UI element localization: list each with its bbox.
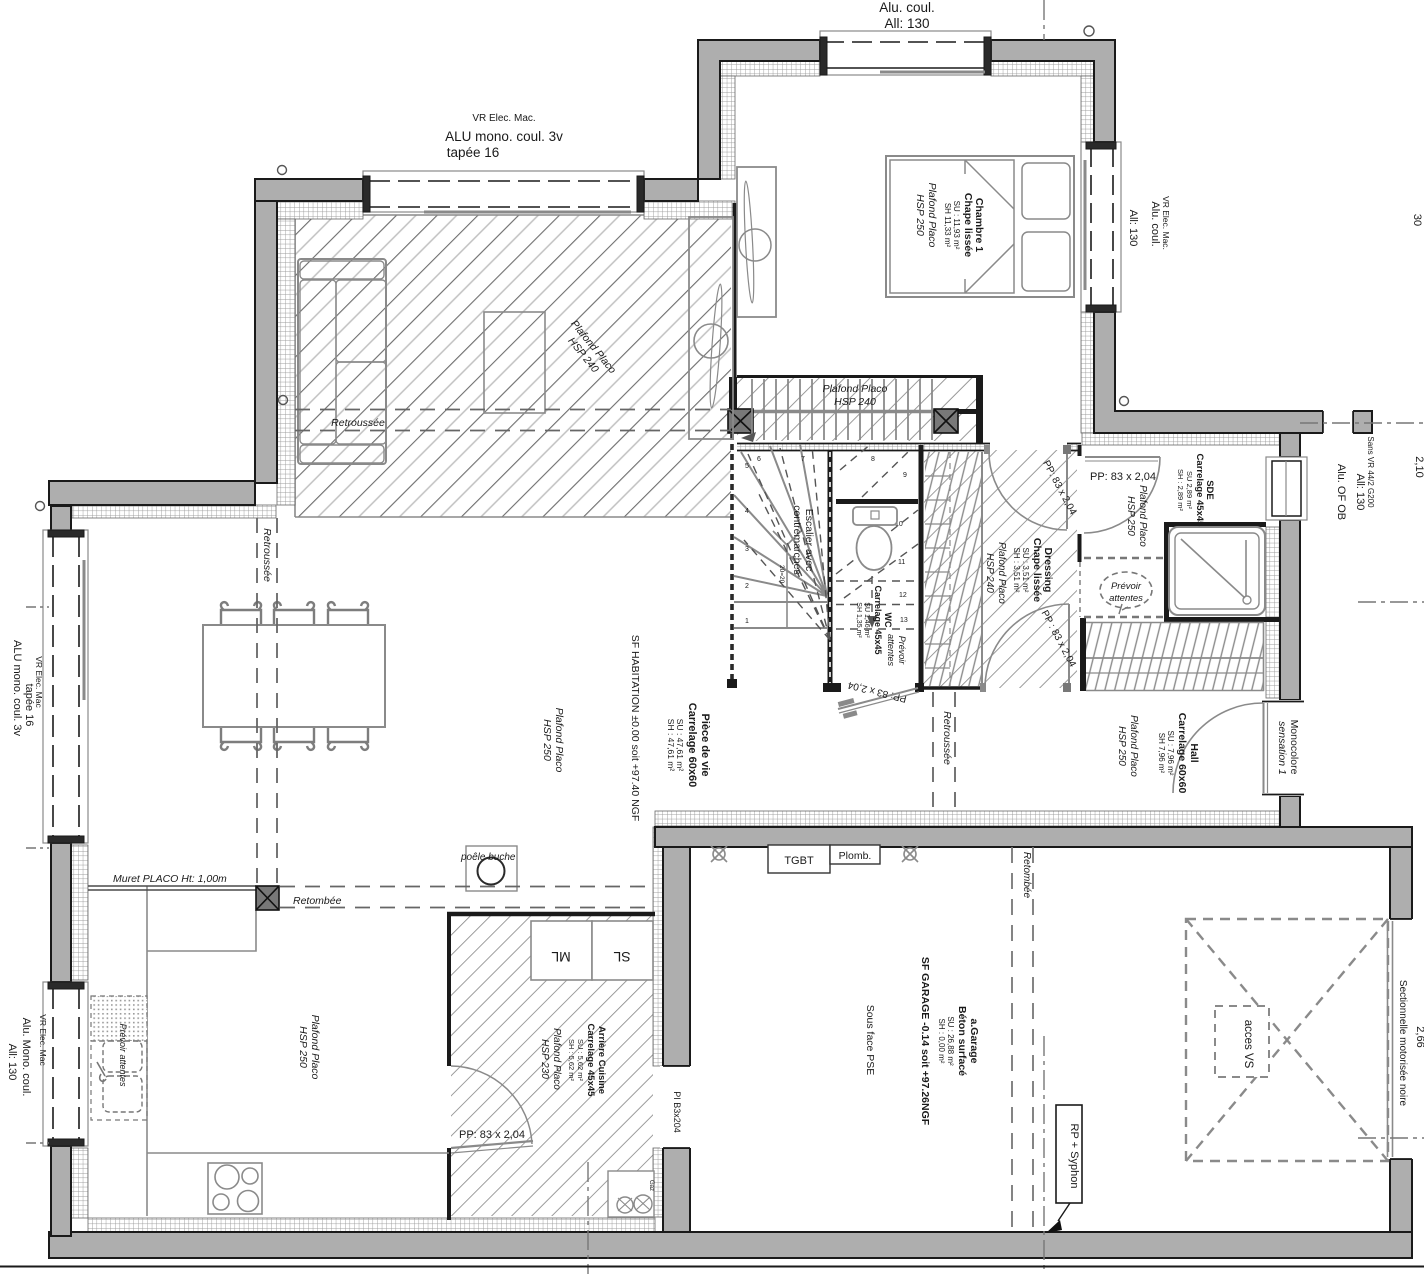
- svg-text:4: 4: [745, 508, 749, 515]
- svg-text:13: 13: [900, 617, 908, 624]
- svg-text:PI B3x204: PI B3x204: [672, 1091, 682, 1133]
- svg-text:6: 6: [757, 456, 761, 463]
- svg-text:Prévoir: Prévoir: [897, 636, 907, 666]
- svg-text:Retroussée: Retroussée: [331, 417, 385, 429]
- svg-text:All: 130: All: 130: [1127, 210, 1139, 247]
- svg-text:Alu. OF OB: Alu. OF OB: [1335, 464, 1347, 520]
- svg-text:VR Elec. Mac: VR Elec. Mac: [38, 1014, 48, 1066]
- svg-text:poêle buche: poêle buche: [460, 852, 516, 863]
- svg-text:SU : 26,88 m²: SU : 26,88 m²: [946, 1016, 955, 1066]
- svg-text:30: 30: [1411, 214, 1423, 226]
- svg-text:ALU mono. coul. 3v: ALU mono. coul. 3v: [11, 640, 23, 736]
- svg-text:Hall: Hall: [1188, 743, 1200, 762]
- svg-text:contremarches: contremarches: [791, 505, 803, 574]
- svg-text:9: 9: [903, 472, 907, 479]
- svg-text:SH 11,33 m²: SH 11,33 m²: [943, 203, 952, 248]
- svg-text:sensation 1: sensation 1: [1276, 721, 1288, 775]
- svg-text:PP: 83 x 2,04: PP: 83 x 2,04: [1090, 471, 1156, 483]
- svg-text:8: 8: [871, 456, 875, 463]
- svg-text:Pièce de vie: Pièce de vie: [699, 714, 711, 777]
- svg-text:acces VS: acces VS: [1242, 1020, 1254, 1069]
- svg-text:Sectionnelle motorisée noire: Sectionnelle motorisée noire: [1397, 980, 1408, 1107]
- svg-text:2: 2: [745, 583, 749, 590]
- svg-text:SH : 47,61 m²: SH : 47,61 m²: [666, 719, 676, 772]
- svg-text:Prévoir: Prévoir: [1111, 581, 1142, 592]
- svg-text:Chape lissée: Chape lissée: [1031, 538, 1043, 602]
- svg-text:Plafond Placo: Plafond Placo: [823, 383, 888, 395]
- svg-text:Retroussée: Retroussée: [941, 711, 953, 765]
- svg-text:Arrière Cuisine: Arrière Cuisine: [596, 1026, 607, 1094]
- svg-text:tapée 16: tapée 16: [23, 684, 35, 727]
- svg-text:Prévoir attentes: Prévoir attentes: [118, 1023, 128, 1087]
- svg-text:SH 1,35 m²: SH 1,35 m²: [855, 602, 862, 638]
- svg-text:Chape lissée: Chape lissée: [962, 193, 974, 257]
- svg-text:RP + Syphon: RP + Syphon: [1068, 1124, 1080, 1189]
- svg-text:Alu. Mono. coul.: Alu. Mono. coul.: [20, 1018, 32, 1097]
- svg-text:a.Garage: a.Garage: [968, 1019, 980, 1064]
- svg-text:2,10: 2,10: [1413, 456, 1424, 477]
- svg-text:Sans VR 44/2 G200: Sans VR 44/2 G200: [1366, 436, 1375, 508]
- svg-text:All: 130: All: 130: [884, 16, 929, 31]
- svg-text:SU : 5,62 m²: SU : 5,62 m²: [576, 1039, 585, 1082]
- svg-text:HSP 250: HSP 250: [541, 719, 553, 761]
- svg-text:SF HABITATION ±0.00 soit +97.4: SF HABITATION ±0.00 soit +97.40 NGF: [629, 635, 641, 822]
- svg-text:5: 5: [745, 463, 749, 470]
- svg-text:Carrelage 60x60: Carrelage 60x60: [1176, 713, 1188, 794]
- svg-text:TGBT: TGBT: [784, 855, 814, 867]
- svg-text:SH : 5,62 m²: SH : 5,62 m²: [567, 1039, 576, 1082]
- svg-text:Plafond Placo: Plafond Placo: [996, 542, 1007, 604]
- svg-text:SL: SL: [613, 949, 630, 965]
- svg-text:SU 2,89 m²: SU 2,89 m²: [1185, 471, 1194, 509]
- svg-text:HSP 250: HSP 250: [914, 194, 926, 236]
- svg-text:SH 7,96 m²: SH 7,96 m²: [1157, 733, 1166, 774]
- svg-text:11: 11: [898, 559, 905, 566]
- svg-text:ML: ML: [551, 949, 571, 965]
- svg-text:SU : 3,51 m²: SU : 3,51 m²: [1021, 548, 1030, 593]
- svg-text:Retroussée: Retroussée: [261, 528, 273, 582]
- svg-text:Carrelage 45x45: Carrelage 45x45: [873, 585, 883, 654]
- svg-text:attentes: attentes: [1109, 593, 1143, 604]
- svg-text:Carrelage 60x60: Carrelage 60x60: [686, 703, 698, 787]
- svg-text:HSP 240: HSP 240: [984, 553, 995, 593]
- svg-text:Carrelage 45x45: Carrelage 45x45: [1194, 454, 1205, 528]
- svg-text:VR Elec. Mac.: VR Elec. Mac.: [472, 113, 535, 124]
- svg-text:Muret PLACO Ht: 1,00m: Muret PLACO Ht: 1,00m: [113, 873, 227, 885]
- svg-text:Béton surfacé: Béton surfacé: [956, 1006, 968, 1076]
- svg-text:HSP 250: HSP 250: [1125, 496, 1136, 536]
- svg-text:3: 3: [745, 546, 749, 553]
- svg-text:SH : 3,51 m²: SH : 3,51 m²: [1012, 548, 1021, 593]
- svg-text:VR Elec. Mac.: VR Elec. Mac.: [1161, 196, 1171, 250]
- svg-text:12: 12: [899, 592, 907, 599]
- svg-text:20=20: 20=20: [778, 565, 785, 584]
- svg-text:Gaz: Gaz: [648, 1180, 654, 1191]
- svg-text:Sous face PSE: Sous face PSE: [864, 1005, 876, 1076]
- svg-text:PP: 83 x 2,04: PP: 83 x 2,04: [459, 1129, 525, 1141]
- svg-text:SU : 11,93 m²: SU : 11,93 m²: [952, 201, 961, 250]
- svg-text:All: 130: All: 130: [6, 1044, 18, 1081]
- svg-text:Retombée: Retombée: [293, 895, 342, 907]
- svg-text:SU 1,46 m²: SU 1,46 m²: [863, 602, 870, 638]
- svg-text:attentes: attentes: [886, 634, 896, 667]
- svg-text:Plafond Placo: Plafond Placo: [551, 1028, 562, 1090]
- svg-text:SF GARAGE -0.14 soit +97.26NGF: SF GARAGE -0.14 soit +97.26NGF: [919, 957, 931, 1126]
- svg-text:Plafond Placo: Plafond Placo: [309, 1015, 321, 1080]
- svg-text:Plomb.: Plomb.: [839, 850, 872, 862]
- svg-text:HSP 240: HSP 240: [834, 396, 876, 408]
- svg-text:Escalier avec: Escalier avec: [803, 509, 815, 571]
- svg-text:Alu. coul.: Alu. coul.: [1149, 201, 1161, 246]
- svg-text:2,66: 2,66: [1414, 1026, 1424, 1047]
- svg-text:Plafond Placo: Plafond Placo: [1137, 485, 1148, 547]
- svg-text:Alu. coul.: Alu. coul.: [879, 0, 935, 15]
- svg-text:HSP 250: HSP 250: [297, 1026, 309, 1068]
- svg-text:WC: WC: [883, 613, 893, 628]
- svg-text:HSP 230: HSP 230: [539, 1039, 550, 1079]
- svg-text:7: 7: [801, 456, 805, 463]
- svg-text:Retombée: Retombée: [1021, 852, 1032, 899]
- svg-text:1: 1: [745, 618, 749, 625]
- svg-text:Plafond Placo: Plafond Placo: [1128, 715, 1139, 777]
- svg-text:ALU mono. coul. 3v: ALU mono. coul. 3v: [445, 129, 563, 144]
- svg-text:All: 130: All: 130: [1354, 474, 1366, 511]
- svg-text:Carrelage 45x45: Carrelage 45x45: [585, 1024, 596, 1098]
- svg-text:SU : 7,96 m²: SU : 7,96 m²: [1166, 731, 1175, 776]
- svg-text:Monocolore: Monocolore: [1288, 720, 1300, 775]
- svg-text:HSP 250: HSP 250: [1116, 726, 1127, 766]
- svg-text:Plafond Placo: Plafond Placo: [553, 708, 565, 773]
- svg-text:SH : 2,89 m²: SH : 2,89 m²: [1176, 469, 1185, 512]
- svg-text:Plafond Placo: Plafond Placo: [926, 183, 938, 248]
- svg-text:tapée 16: tapée 16: [447, 145, 500, 160]
- svg-text:SH : 0,00 m²: SH : 0,00 m²: [937, 1019, 946, 1064]
